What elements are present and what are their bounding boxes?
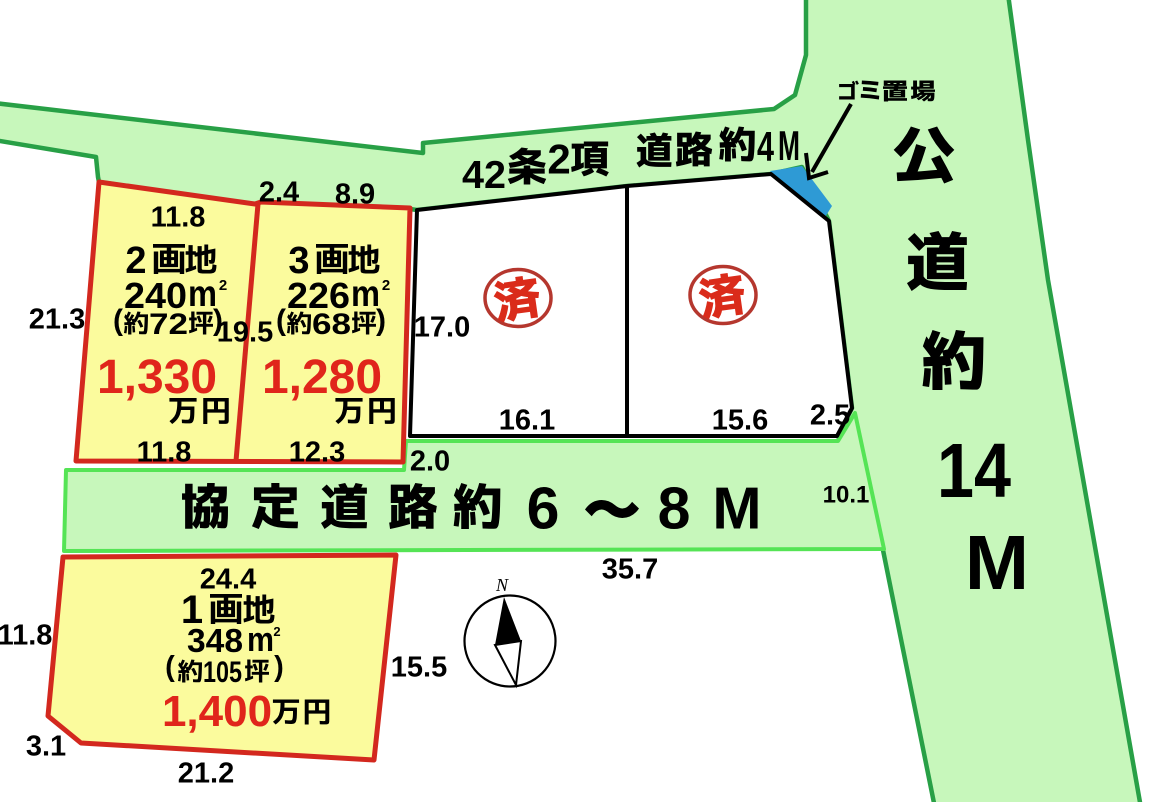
svg-text:(: ( (113, 304, 123, 337)
svg-text:4: 4 (757, 123, 774, 170)
svg-text:105: 105 (203, 656, 242, 689)
svg-text:16.1: 16.1 (499, 405, 555, 437)
svg-text:2: 2 (547, 136, 570, 183)
svg-text:): ) (376, 304, 386, 337)
svg-text:348: 348 (187, 622, 243, 659)
svg-text:72: 72 (149, 308, 188, 341)
svg-text:11.8: 11.8 (137, 437, 192, 469)
svg-text:24.4: 24.4 (200, 564, 256, 596)
svg-text:10.1: 10.1 (823, 482, 870, 509)
svg-text:14: 14 (937, 428, 1011, 514)
svg-text:17.0: 17.0 (414, 312, 470, 344)
svg-text:1,280: 1,280 (262, 351, 382, 404)
svg-text:8: 8 (658, 476, 691, 542)
svg-text:35.7: 35.7 (602, 554, 658, 586)
svg-text:11.8: 11.8 (151, 202, 206, 234)
svg-text:2: 2 (382, 277, 390, 294)
svg-text:2.0: 2.0 (410, 446, 450, 478)
svg-text:19.5: 19.5 (217, 317, 273, 349)
svg-text:2: 2 (273, 624, 280, 639)
svg-text:2.4: 2.4 (259, 177, 299, 209)
svg-text:M: M (712, 476, 761, 542)
svg-text:15.6: 15.6 (712, 405, 768, 437)
svg-text:(: ( (276, 304, 286, 337)
svg-text:(: ( (165, 651, 175, 683)
svg-text:8.9: 8.9 (335, 179, 375, 211)
svg-text:3.1: 3.1 (26, 731, 66, 763)
svg-text:12.3: 12.3 (289, 437, 345, 469)
svg-text:42: 42 (462, 154, 506, 197)
svg-text:1,330: 1,330 (97, 351, 217, 404)
svg-text:11.8: 11.8 (0, 620, 52, 652)
svg-text:21.3: 21.3 (29, 304, 85, 336)
svg-text:m: m (247, 621, 274, 659)
svg-text:N: N (495, 575, 509, 595)
svg-text:): ) (274, 651, 284, 683)
svg-text:M: M (778, 122, 800, 169)
svg-text:15.5: 15.5 (391, 652, 447, 684)
svg-text:2: 2 (219, 277, 227, 294)
svg-text:1,400: 1,400 (162, 687, 272, 736)
svg-text:M: M (965, 520, 1029, 606)
svg-text:6: 6 (527, 476, 560, 542)
svg-text:21.2: 21.2 (178, 758, 234, 790)
svg-text:2.5: 2.5 (810, 400, 850, 432)
svg-text:68: 68 (312, 308, 351, 341)
